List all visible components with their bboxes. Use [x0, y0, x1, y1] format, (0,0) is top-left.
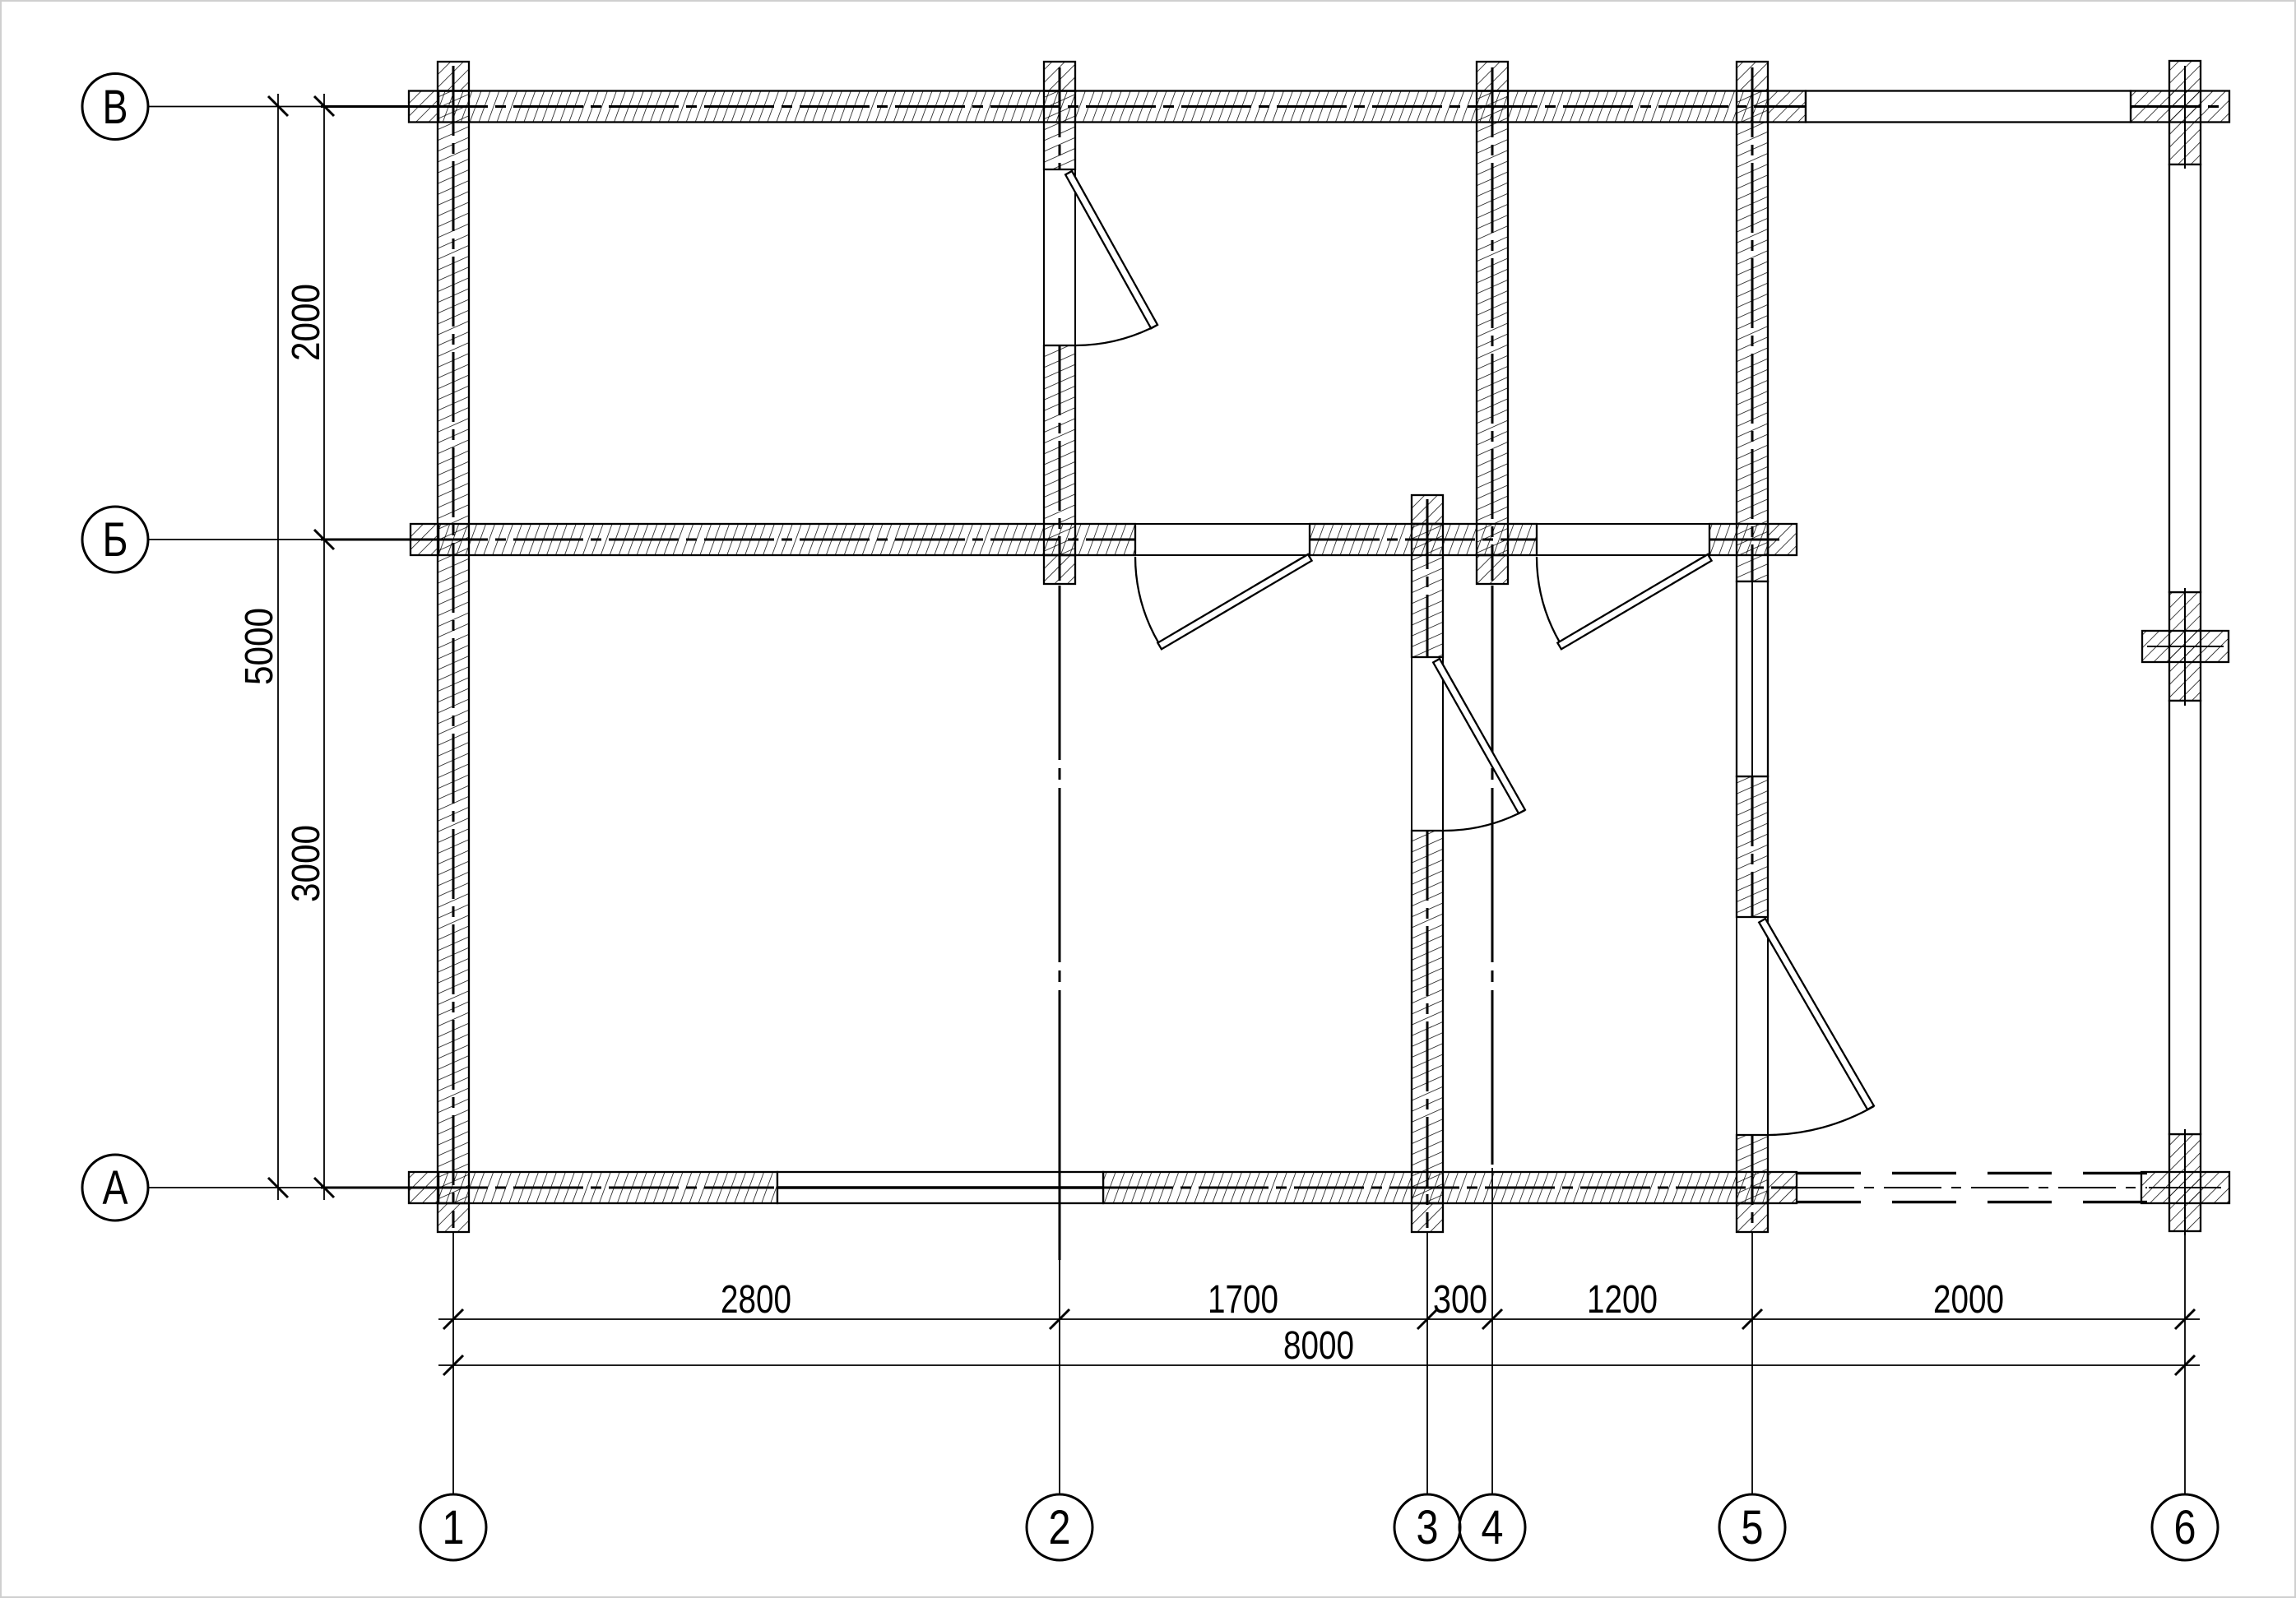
svg-text:5: 5	[1742, 1501, 1764, 1554]
svg-text:4: 4	[1482, 1501, 1504, 1554]
svg-text:3000: 3000	[285, 825, 328, 902]
svg-text:8000: 8000	[1283, 1324, 1354, 1368]
svg-text:А: А	[103, 1161, 128, 1215]
svg-text:2000: 2000	[285, 284, 328, 361]
svg-text:1200: 1200	[1587, 1278, 1658, 1322]
svg-text:В: В	[103, 81, 128, 134]
svg-text:1700: 1700	[1208, 1278, 1278, 1322]
svg-text:3: 3	[1417, 1501, 1439, 1554]
svg-text:2800: 2800	[721, 1278, 791, 1322]
svg-text:5000: 5000	[238, 608, 281, 685]
svg-text:Б: Б	[103, 513, 128, 567]
svg-text:2: 2	[1049, 1501, 1071, 1554]
svg-text:300: 300	[1433, 1278, 1487, 1322]
svg-text:2000: 2000	[1933, 1278, 2004, 1322]
svg-text:6: 6	[2174, 1501, 2196, 1554]
svg-text:1: 1	[443, 1501, 465, 1554]
